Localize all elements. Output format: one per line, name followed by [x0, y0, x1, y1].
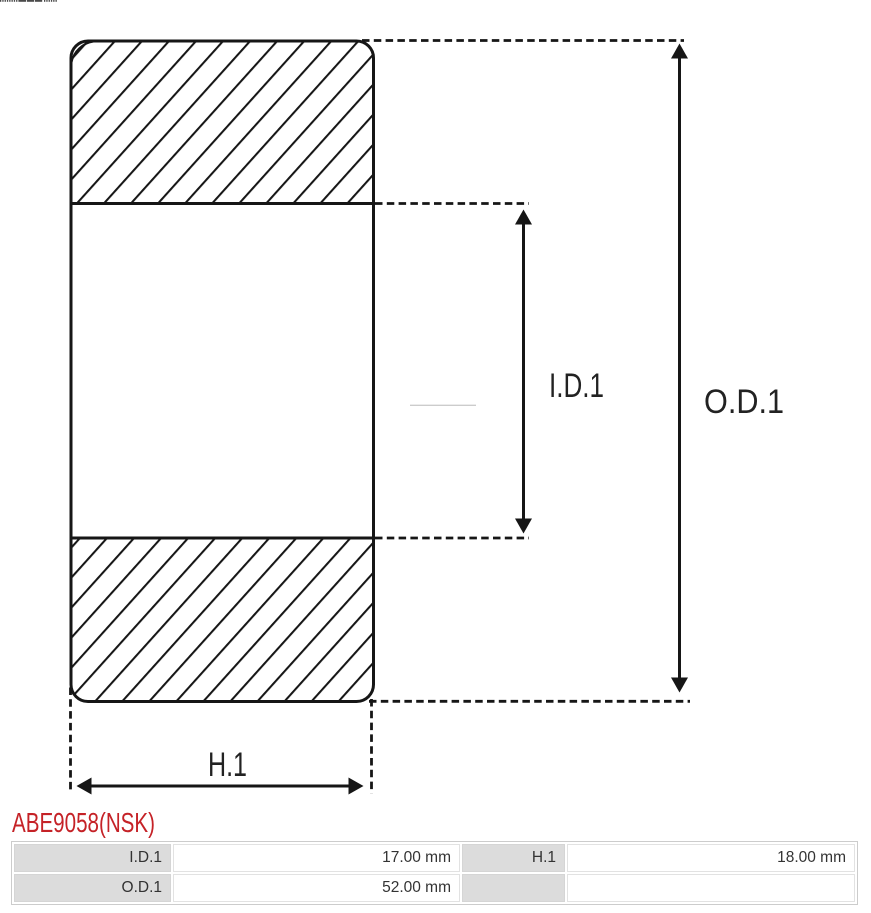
svg-text:H.1: H.1: [208, 746, 247, 784]
svg-text:I.D.1: I.D.1: [549, 367, 604, 405]
svg-text:ABE9058(NSK): ABE9058(NSK): [12, 807, 155, 838]
svg-text:O.D.1: O.D.1: [704, 383, 784, 421]
